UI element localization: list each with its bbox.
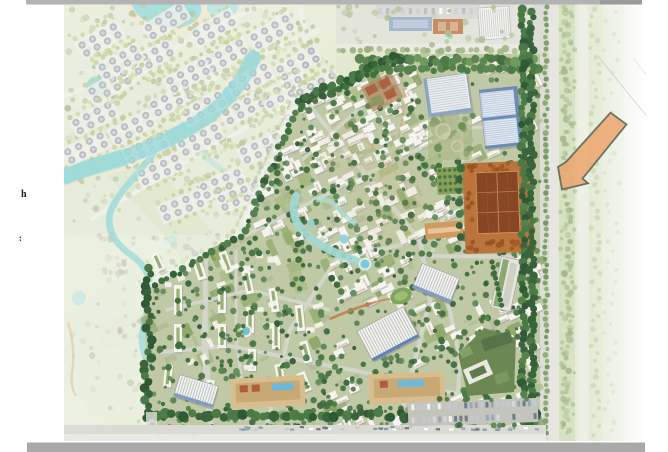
svg-text::: : (19, 233, 22, 243)
svg-text:h: h (21, 189, 27, 200)
